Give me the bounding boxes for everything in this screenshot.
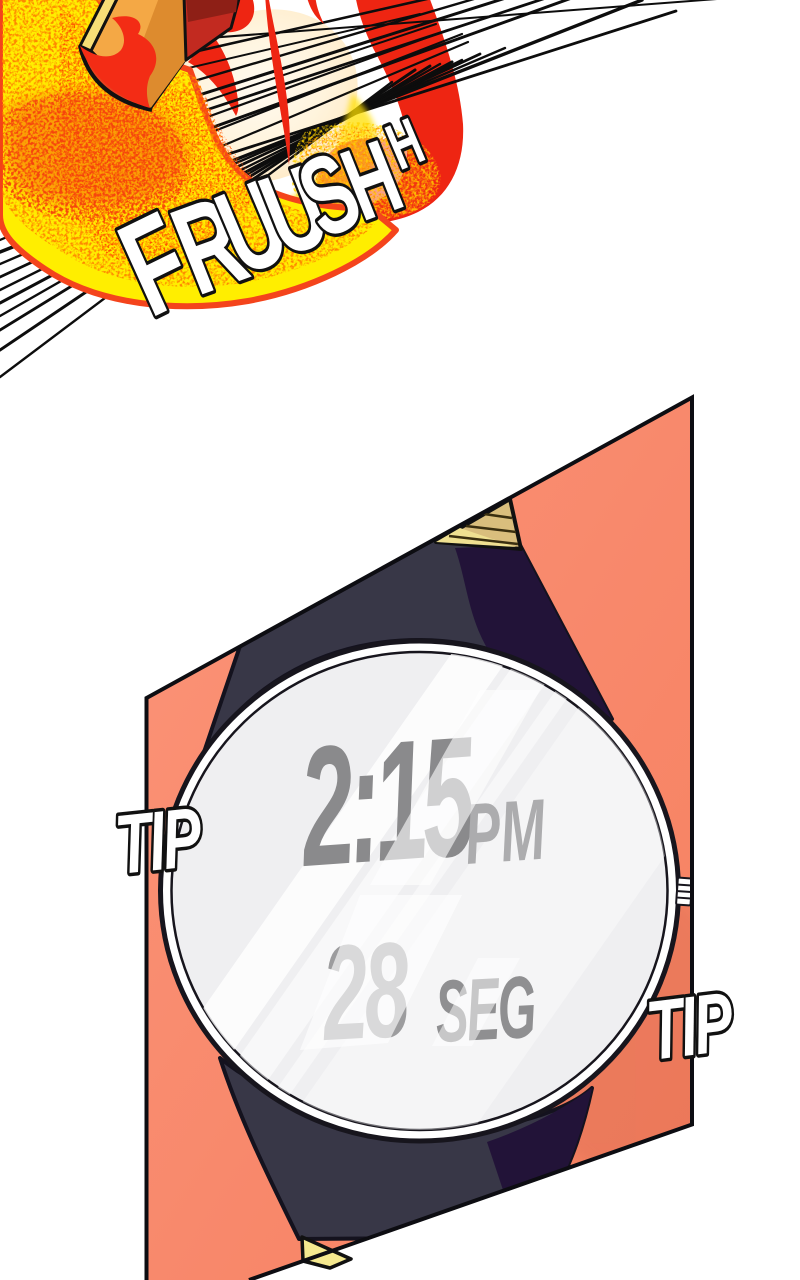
svg-text:TIP: TIP	[642, 975, 739, 1079]
svg-text:TIP: TIP	[111, 790, 207, 892]
